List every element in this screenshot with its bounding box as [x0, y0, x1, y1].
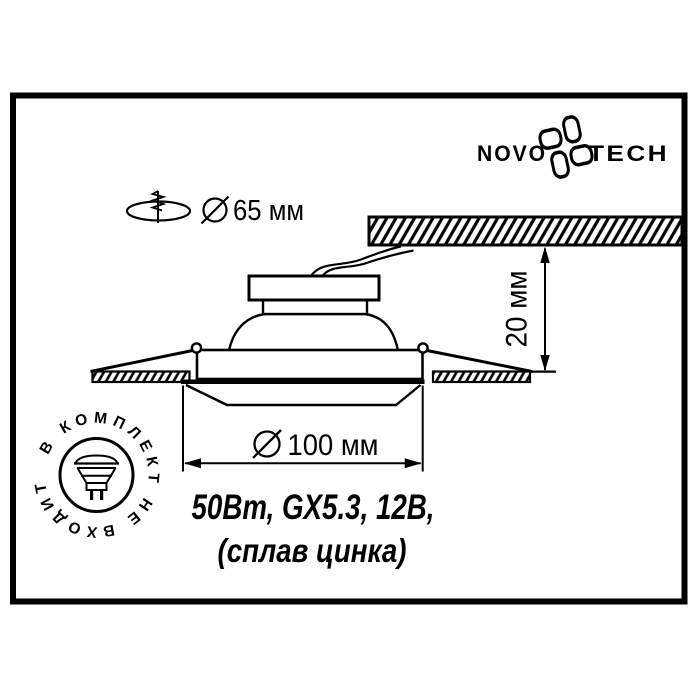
trim-cone: [186, 385, 421, 405]
spec-line-1: 50Вт, GX5.3, 12В,: [192, 488, 435, 527]
pinwheel-petal: [550, 151, 569, 178]
mounting-hole-spring-icon: [127, 191, 190, 223]
pinwheel-petal: [539, 128, 563, 149]
arrow-up-icon: [540, 247, 549, 264]
lamp-pin: [90, 490, 93, 500]
mr16-lamp-icon: [74, 456, 119, 501]
lamp-pin: [100, 490, 103, 500]
dimension-depth: 20 мм: [501, 247, 557, 372]
cutout-spec: 65 мм: [127, 191, 304, 227]
logo-text-tech: TECH: [588, 141, 669, 166]
clip-arm-right: [427, 351, 532, 372]
fixture-dome: [229, 314, 398, 351]
trim-flange: [197, 350, 423, 379]
brand-logo: NOVO TECH: [477, 114, 669, 179]
product-drawing-page: NOVO TECH 65 мм: [0, 0, 700, 700]
cutout-diameter-label: 65 мм: [233, 195, 304, 227]
trim-lip: [181, 380, 425, 385]
spring-clip-right: [418, 343, 427, 352]
spring-clip-left: [192, 343, 201, 352]
fixture-cross-section: [91, 276, 533, 405]
ceiling-slab: [369, 217, 682, 245]
diameter-symbol-100: [253, 430, 281, 458]
spec-line-2: (сплав цинка): [218, 532, 407, 569]
clip-arm-left: [91, 351, 193, 372]
depth-label: 20 мм: [501, 271, 534, 348]
logo-text-novo: NOVO: [477, 141, 547, 166]
not-included-stamp: В КОМПЛЕКТ НЕ ВХОДИТ: [31, 409, 162, 540]
false-ceiling-left: [93, 372, 190, 383]
wire-line: [323, 251, 414, 277]
pinwheel-petal: [570, 145, 594, 166]
wire-line: [311, 247, 401, 277]
diameter-symbol-65: [202, 197, 229, 224]
pinwheel-icon: [537, 114, 595, 179]
arrow-left-icon: [184, 458, 201, 468]
junction-box: [249, 276, 379, 300]
width-label: 100 мм: [288, 429, 379, 462]
pinwheel-petal: [562, 116, 581, 143]
fixture-neck: [263, 300, 367, 314]
false-ceiling-right: [433, 372, 530, 383]
spec-text: 50Вт, GX5.3, 12В, (сплав цинка): [192, 488, 435, 569]
diagram-canvas: NOVO TECH 65 мм: [0, 0, 700, 700]
arrow-right-icon: [405, 458, 422, 468]
dimension-width: 100 мм: [183, 386, 423, 472]
arrow-down-icon: [540, 355, 549, 371]
power-wire: [311, 247, 414, 277]
